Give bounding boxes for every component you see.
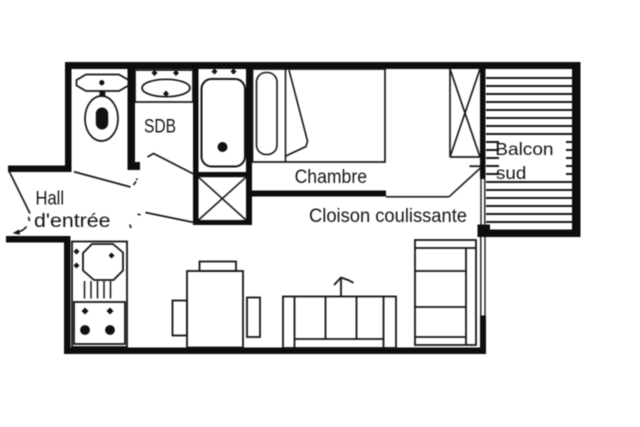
svg-text:Balcon: Balcon [495, 139, 553, 159]
svg-text:Cloison coulissante: Cloison coulissante [309, 206, 467, 227]
svg-text:Chambre: Chambre [295, 167, 367, 188]
svg-text:Hall: Hall [36, 189, 65, 210]
svg-text:d'entrée: d'entrée [34, 211, 111, 232]
svg-text:SDB: SDB [144, 116, 176, 137]
svg-text:sud: sud [496, 163, 526, 183]
